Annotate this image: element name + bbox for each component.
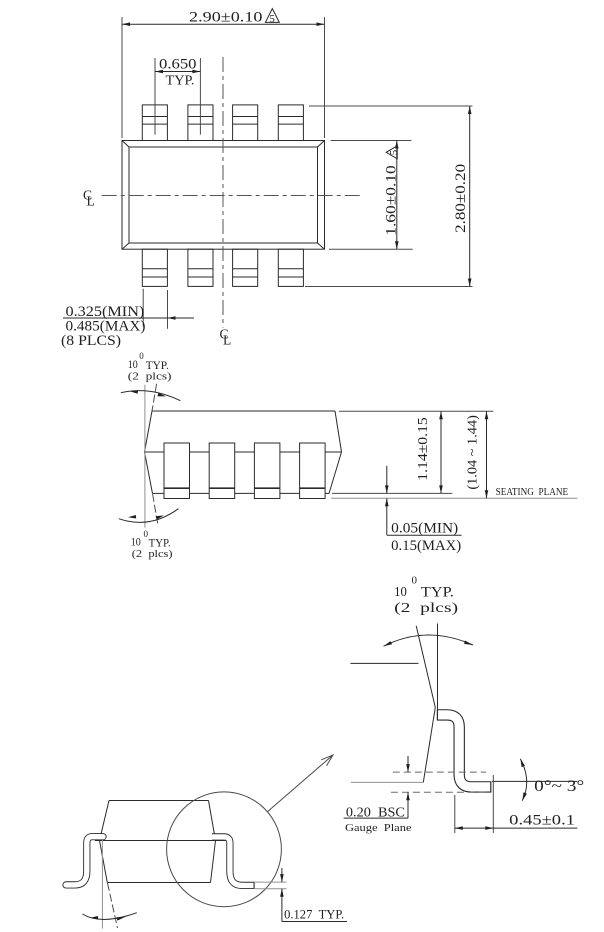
svg-text:0.127 TYP.: 0.127 TYP. xyxy=(284,907,344,922)
svg-text:Gauge Plane: Gauge Plane xyxy=(345,822,412,834)
svg-text:0.45±0.1: 0.45±0.1 xyxy=(509,813,575,829)
svg-text:0.325(MIN): 0.325(MIN) xyxy=(66,304,145,320)
svg-text:10: 10 xyxy=(128,357,138,371)
svg-text:TYP.: TYP. xyxy=(166,74,195,89)
svg-text:0.650: 0.650 xyxy=(159,57,197,73)
svg-text:0: 0 xyxy=(412,574,418,586)
svg-text:0.05(MIN): 0.05(MIN) xyxy=(391,521,458,537)
svg-text:(2 plcs): (2 plcs) xyxy=(128,370,172,382)
svg-text:L: L xyxy=(223,333,231,348)
svg-text:TYP.: TYP. xyxy=(421,585,454,601)
svg-text:2.90±0.10: 2.90±0.10 xyxy=(189,10,263,26)
svg-text:(1.04 ~ 1.44): (1.04 ~ 1.44) xyxy=(466,415,481,490)
svg-text:5: 5 xyxy=(270,14,275,25)
svg-text:1.60±0.10: 1.60±0.10 xyxy=(384,165,400,236)
svg-text:SEATING PLANE: SEATING PLANE xyxy=(496,486,569,498)
svg-text:0.20 BSC: 0.20 BSC xyxy=(346,805,405,820)
svg-text:1.14±0.15: 1.14±0.15 xyxy=(416,417,431,481)
svg-text:(2 plcs): (2 plcs) xyxy=(132,548,173,560)
svg-text:(2 plcs): (2 plcs) xyxy=(394,601,458,616)
svg-text:0°~ 3°: 0°~ 3° xyxy=(534,778,584,795)
svg-text:0: 0 xyxy=(139,351,144,361)
svg-text:10: 10 xyxy=(131,535,141,549)
svg-text:(8 PLCS): (8 PLCS) xyxy=(61,333,121,349)
svg-text:2.80±0.20: 2.80±0.20 xyxy=(453,164,469,233)
svg-text:10: 10 xyxy=(394,585,407,600)
svg-text:0.15(MAX): 0.15(MAX) xyxy=(391,538,461,554)
svg-text:5: 5 xyxy=(389,150,400,155)
svg-text:L: L xyxy=(87,194,95,209)
